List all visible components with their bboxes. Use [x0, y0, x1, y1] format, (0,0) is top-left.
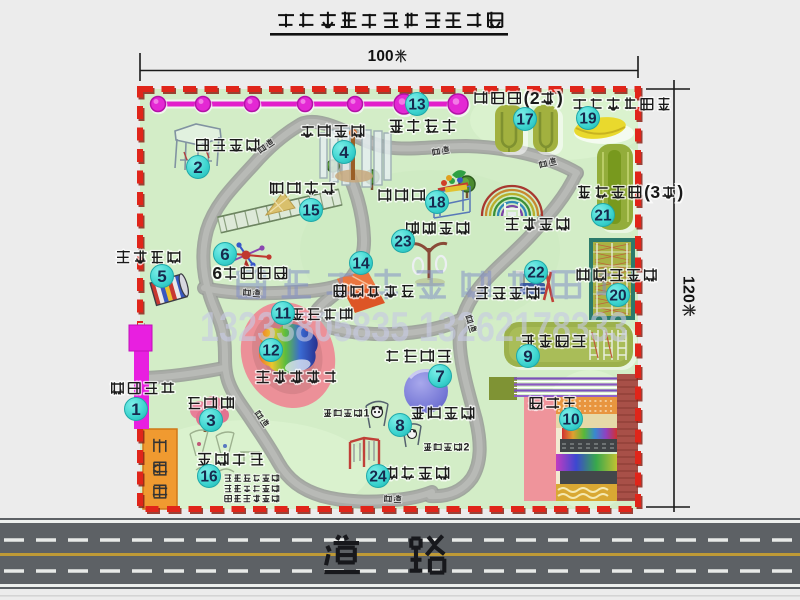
svg-text:11: 11	[275, 306, 292, 323]
svg-text:4: 4	[339, 143, 349, 162]
svg-text:24: 24	[369, 469, 387, 486]
svg-text:): )	[557, 88, 563, 108]
svg-text:18: 18	[428, 195, 446, 212]
svg-text:1: 1	[368, 48, 377, 65]
svg-text:2: 2	[680, 285, 697, 294]
svg-text:1: 1	[680, 276, 697, 285]
svg-text:16: 16	[200, 469, 218, 486]
svg-text:0: 0	[376, 48, 385, 65]
svg-text:3: 3	[206, 411, 215, 430]
svg-text:6: 6	[220, 245, 229, 264]
svg-text:2: 2	[463, 442, 469, 454]
svg-text:2: 2	[193, 158, 202, 177]
svg-text:15: 15	[302, 203, 320, 220]
svg-text:14: 14	[352, 256, 370, 273]
svg-text:(: (	[524, 88, 530, 108]
svg-text:2: 2	[530, 88, 540, 108]
svg-text:1: 1	[131, 400, 140, 419]
svg-text:13: 13	[408, 97, 426, 114]
svg-text:23: 23	[394, 234, 412, 251]
svg-text:8: 8	[395, 416, 404, 435]
svg-text:1: 1	[363, 408, 369, 420]
svg-text:19: 19	[579, 111, 597, 128]
svg-text:22: 22	[527, 265, 544, 282]
svg-text:(: (	[644, 182, 650, 202]
svg-text:0: 0	[680, 294, 697, 303]
svg-text:17: 17	[516, 112, 533, 129]
svg-text:): )	[677, 182, 683, 202]
svg-text:20: 20	[609, 288, 626, 305]
svg-text:5: 5	[157, 267, 166, 286]
svg-text:21: 21	[594, 208, 612, 225]
svg-text:7: 7	[435, 367, 444, 386]
svg-text:10: 10	[562, 412, 579, 429]
svg-text:9: 9	[523, 347, 532, 366]
svg-text:0: 0	[385, 48, 394, 65]
svg-text:12: 12	[262, 343, 279, 360]
svg-text:3: 3	[650, 182, 660, 202]
svg-text:6: 6	[212, 263, 222, 283]
